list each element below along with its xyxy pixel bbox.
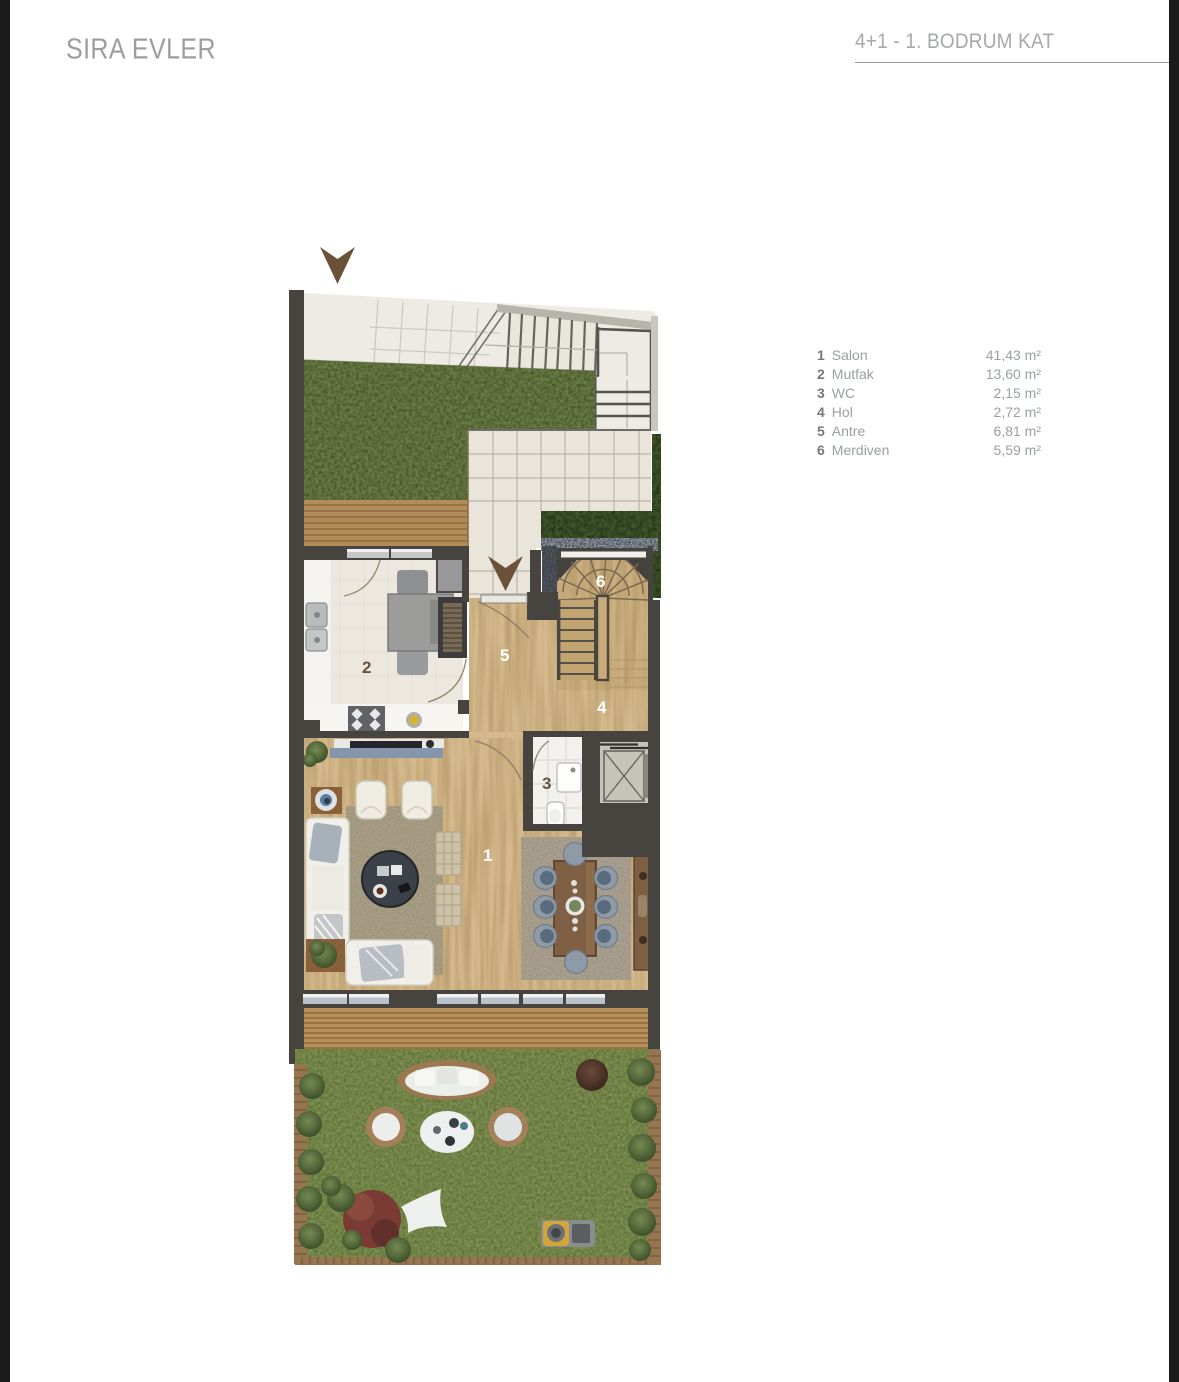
svg-text:4: 4 [597,698,607,717]
svg-text:5: 5 [500,646,509,665]
svg-text:2: 2 [362,658,371,677]
svg-text:3: 3 [542,774,551,793]
svg-text:1: 1 [483,846,492,865]
svg-text:6: 6 [596,572,605,591]
